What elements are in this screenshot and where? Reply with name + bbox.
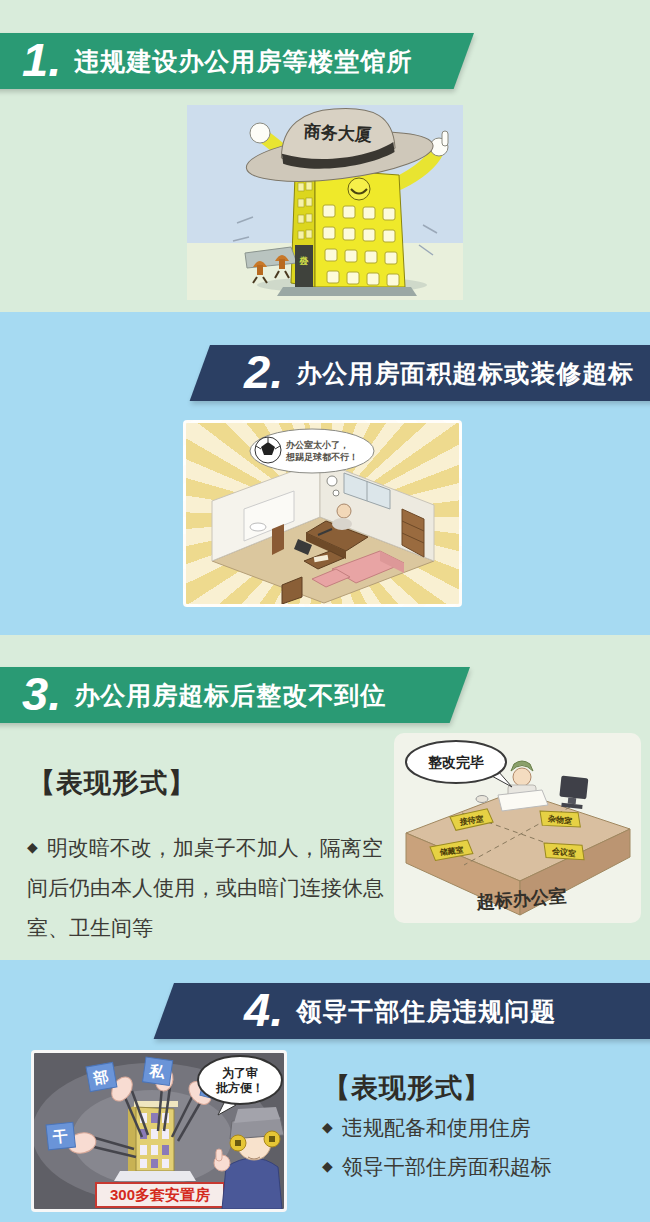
section-3-bullet-text: 明改暗不改，加桌子不加人，隔离空间后仍由本人使用，或由暗门连接休息室、卫生间等 (27, 836, 384, 939)
section-4-bullet-1-text: 违规配备和使用住房 (342, 1116, 531, 1139)
housing-violation-illustration: 300多套安置房 干 部 (31, 1050, 287, 1212)
pedestal (114, 1171, 196, 1181)
banner-4-title: 领导干部住房违规问题 (296, 995, 556, 1028)
teacup (476, 796, 488, 803)
banner-4-number: 4. (244, 986, 283, 1033)
building-hat-illustration: 办公楼 商务大厦 (187, 105, 463, 300)
oversize-desk-illustration: 接待室 杂物室 储藏室 会议室 超标办公室 整改完毕 (394, 733, 641, 923)
bubble-text-line2: 想踢足球都不行！ (285, 452, 358, 462)
section-4-bullet-1: ◆违规配备和使用住房 (322, 1114, 531, 1142)
diamond-bullet-icon: ◆ (27, 839, 38, 855)
bubble-dot-small (333, 490, 339, 496)
house-roof (134, 1101, 178, 1107)
official-head (513, 768, 531, 786)
tag-bu: 部 (86, 1062, 117, 1091)
banner-1: 1. 违规建设办公用房等楼堂馆所 (0, 33, 474, 89)
hat-text: 商务大厦 (303, 121, 373, 145)
banner-3-number: 3. (22, 670, 61, 717)
official-suit (222, 1158, 282, 1209)
speech-bubble-text: 整改完毕 (428, 754, 484, 770)
section-3-heading: 【表现形式】 (28, 765, 196, 801)
bubble-text-line1: 办公室太小了， (285, 440, 349, 450)
toilet (250, 523, 266, 531)
tag-si: 私 (143, 1057, 173, 1086)
banner-1-title: 违规建设办公用房等楼堂馆所 (74, 45, 412, 78)
banner-3-title: 办公用房超标后整改不到位 (74, 679, 386, 712)
entrance-sign (295, 245, 313, 289)
section-4-heading: 【表现形式】 (323, 1070, 491, 1106)
pointing-finger (442, 131, 448, 146)
bubble-dot-large (327, 476, 337, 486)
banner-2-number: 2. (244, 348, 283, 395)
tag-gan: 干 (46, 1122, 75, 1150)
banner-1-number: 1. (22, 36, 61, 83)
banner-3: 3. 办公用房超标后整改不到位 (0, 667, 470, 723)
diamond-bullet-icon: ◆ (322, 1158, 333, 1174)
bubble-line2: 批方便！ (215, 1081, 264, 1095)
section-4-bullet-2: ◆领导干部住房面积超标 (322, 1153, 552, 1181)
banner-2: 2. 办公用房面积超标或装修超标 (210, 345, 650, 401)
office-room-illustration: 办公室太小了， 想踢足球都不行！ (183, 420, 462, 607)
bubble-line1: 为了审 (222, 1066, 258, 1080)
infographic-page: 1. 违规建设办公用房等楼堂馆所 2. 办公用房面积超标或装修超标 3. 办公用… (0, 0, 650, 1222)
left-glove (250, 123, 270, 143)
base-step (277, 287, 417, 296)
thumb (216, 1149, 222, 1161)
banner-4: 4. 领导干部住房违规问题 (174, 983, 650, 1039)
svg-text:干: 干 (52, 1127, 69, 1145)
section-4-bullet-2-text: 领导干部住房面积超标 (342, 1155, 552, 1178)
banner-2-title: 办公用房面积超标或装修超标 (296, 357, 634, 390)
speech-bubble (198, 1056, 282, 1104)
person-body (332, 518, 352, 530)
section-3-bullet: ◆明改暗不改，加桌子不加人，隔离空间后仍由本人使用，或由暗门连接休息室、卫生间等 (27, 827, 389, 948)
svg-text:部: 部 (92, 1067, 110, 1086)
person-head (337, 504, 351, 518)
diamond-bullet-icon: ◆ (322, 1119, 333, 1135)
banner-300-homes-text: 300多套安置房 (110, 1186, 210, 1203)
